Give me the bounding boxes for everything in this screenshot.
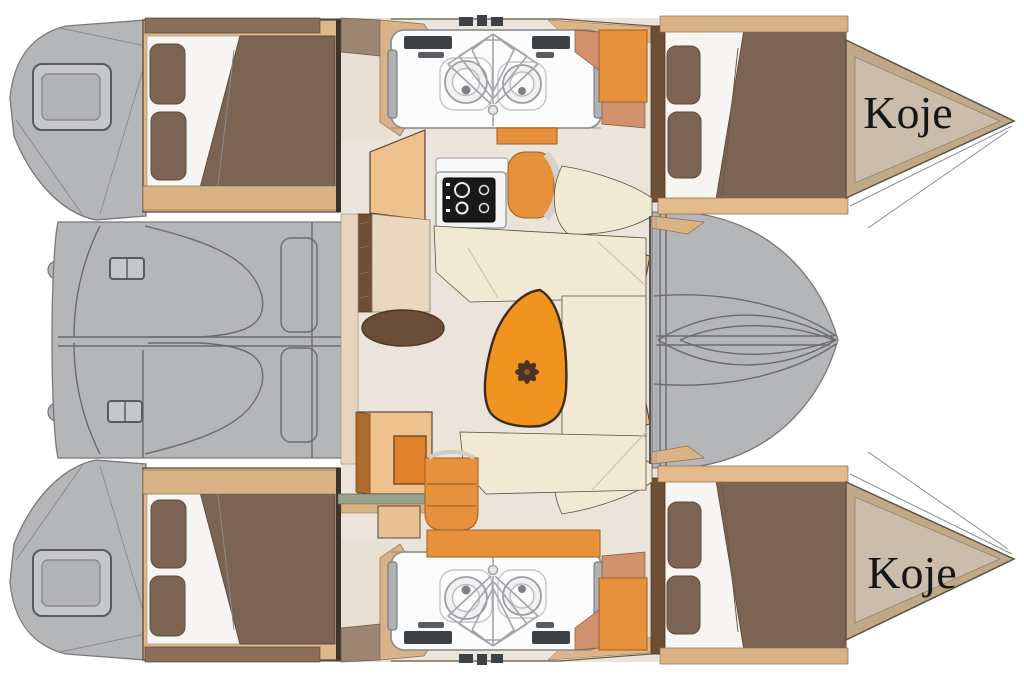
koje-label-port: Koje	[863, 87, 952, 138]
basin-oval	[362, 310, 444, 346]
galley-chair	[508, 152, 558, 218]
catamaran-floorplan: Koje Koje	[0, 0, 1024, 680]
salon	[338, 128, 656, 557]
port-aft-cabin	[143, 18, 341, 212]
stove	[443, 178, 495, 222]
starboard-aft-cabin	[143, 468, 341, 662]
galley-cabinet-top	[497, 128, 557, 144]
sideboard	[341, 214, 358, 464]
cockpit-deck	[48, 222, 345, 458]
cabinet-block	[378, 506, 420, 538]
floorplan-canvas: Koje Koje	[0, 0, 1024, 680]
port-bow: Koje	[846, 40, 1014, 228]
starboard-head-vanity	[388, 552, 603, 665]
starboard-transom	[10, 460, 146, 660]
port-transom	[10, 20, 146, 220]
counter-band	[427, 530, 600, 557]
galley-counter	[372, 214, 430, 312]
koje-label-starboard: Koje	[867, 547, 956, 598]
shelf-bar	[338, 494, 426, 504]
nav-desk-top	[394, 436, 426, 484]
foredeck	[652, 212, 838, 468]
table-starburst	[515, 360, 539, 384]
port-head-vanity	[388, 15, 603, 128]
